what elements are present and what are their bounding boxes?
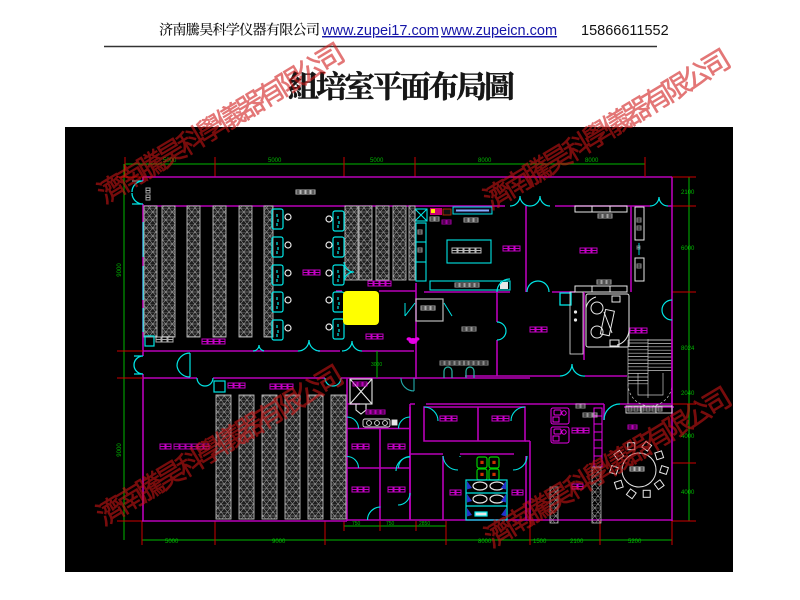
svg-text:www.zupeicn.com: www.zupeicn.com bbox=[440, 23, 557, 39]
svg-text:2100: 2100 bbox=[681, 190, 695, 196]
svg-text:8000: 8000 bbox=[478, 158, 492, 164]
svg-text:6000: 6000 bbox=[681, 246, 695, 252]
svg-text:8024: 8024 bbox=[681, 346, 695, 352]
svg-text:2850: 2850 bbox=[419, 521, 430, 527]
svg-text:750: 750 bbox=[352, 521, 361, 527]
svg-text:4000: 4000 bbox=[681, 490, 695, 496]
svg-text:1500: 1500 bbox=[533, 539, 547, 545]
svg-text:5000: 5000 bbox=[165, 539, 179, 545]
svg-text:15866611552: 15866611552 bbox=[581, 23, 669, 39]
svg-text:www.zupei17.com: www.zupei17.com bbox=[321, 23, 439, 39]
svg-text:5200: 5200 bbox=[628, 539, 642, 545]
svg-text:8000: 8000 bbox=[585, 158, 599, 164]
svg-text:9000: 9000 bbox=[117, 263, 123, 277]
svg-text:9000: 9000 bbox=[272, 539, 286, 545]
svg-text:3000: 3000 bbox=[371, 362, 382, 368]
svg-text:2040: 2040 bbox=[681, 391, 695, 397]
svg-text:9000: 9000 bbox=[117, 443, 123, 457]
svg-text:8000: 8000 bbox=[478, 539, 492, 545]
svg-text:750: 750 bbox=[386, 521, 395, 527]
svg-text:5000: 5000 bbox=[370, 158, 384, 164]
svg-text:5000: 5000 bbox=[268, 158, 282, 164]
svg-text:2100: 2100 bbox=[570, 539, 584, 545]
